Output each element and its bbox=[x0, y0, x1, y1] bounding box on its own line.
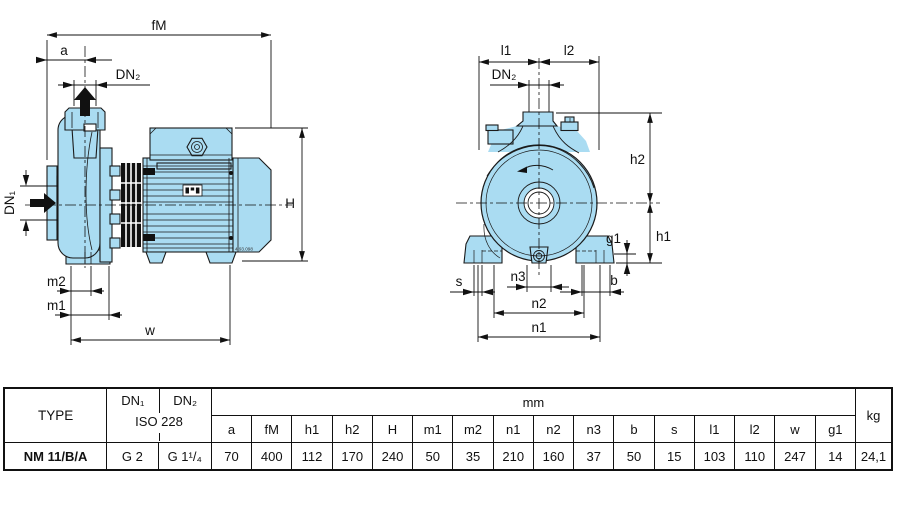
motor-brand-badge bbox=[183, 185, 202, 196]
dim-label-dn2-side: DN₂ bbox=[116, 67, 141, 82]
cell-m1: 50 bbox=[413, 443, 453, 471]
table-row: NM 11/B/A G 2 G 1¹/₄ 70 400 112 170 240 … bbox=[4, 443, 892, 471]
front-fill-plug bbox=[561, 122, 578, 131]
dim-label-dn1: DN₁ bbox=[2, 191, 17, 215]
collar-notch bbox=[84, 124, 96, 131]
dim-label-l2: l2 bbox=[564, 43, 575, 58]
front-view: l1 l2 DN₂ h2 g1 h1 s n3 b n2 n1 bbox=[450, 43, 671, 342]
cell-dn1: G 2 bbox=[107, 443, 158, 471]
cell-type: NM 11/B/A bbox=[4, 443, 107, 471]
motor-foot-rear bbox=[206, 252, 236, 263]
col-header-b: b bbox=[614, 416, 654, 443]
table-header-mm: mm bbox=[211, 388, 855, 416]
col-header-l2: l2 bbox=[735, 416, 775, 443]
dim-label-n1: n1 bbox=[531, 320, 546, 335]
col-header-g1: g1 bbox=[815, 416, 855, 443]
dn-divider-stub bbox=[159, 433, 160, 441]
dimension-table: TYPE DN₁ DN₂ ISO 228 mm kg a fM h1 h2 H … bbox=[3, 387, 893, 471]
side-view: 4.93.098 bbox=[2, 18, 308, 345]
col-header-a: a bbox=[211, 416, 251, 443]
flange-bolt bbox=[110, 214, 120, 224]
table-header-dn1: DN₁ bbox=[107, 389, 159, 413]
pump-dimension-drawing: 4.93.098 bbox=[0, 0, 897, 378]
col-header-s: s bbox=[654, 416, 694, 443]
dim-label-h2: h2 bbox=[630, 152, 645, 167]
dim-label-n2: n2 bbox=[531, 296, 546, 311]
table-header-iso: ISO 228 bbox=[107, 413, 211, 433]
cell-w: 247 bbox=[775, 443, 815, 471]
drawing-number: 4.93.098 bbox=[235, 247, 253, 252]
col-header-n3: n3 bbox=[574, 416, 614, 443]
dim-label-fm: fM bbox=[152, 18, 167, 33]
col-header-H: H bbox=[372, 416, 412, 443]
table-header-dn-iso: DN₁ DN₂ ISO 228 bbox=[107, 388, 212, 443]
dim-label-n3: n3 bbox=[510, 269, 525, 284]
cell-dn2: G 1¹/₄ bbox=[158, 443, 211, 471]
dim-label-m2: m2 bbox=[47, 274, 66, 289]
dim-label-b: b bbox=[610, 273, 618, 288]
side-view-body bbox=[47, 108, 271, 264]
cell-n3: 37 bbox=[574, 443, 614, 471]
dim-label-a: a bbox=[60, 43, 68, 58]
dim-label-h1: h1 bbox=[656, 229, 671, 244]
col-header-h1: h1 bbox=[292, 416, 332, 443]
motor-foot-front bbox=[146, 252, 166, 263]
cell-kg: 24,1 bbox=[856, 443, 892, 471]
table-header-type: TYPE bbox=[4, 388, 107, 443]
cell-g1: 14 bbox=[815, 443, 855, 471]
col-header-n2: n2 bbox=[533, 416, 573, 443]
front-left-boss bbox=[488, 130, 513, 144]
col-header-n1: n1 bbox=[493, 416, 533, 443]
col-header-l1: l1 bbox=[694, 416, 734, 443]
cell-l1: 103 bbox=[694, 443, 734, 471]
cell-b: 50 bbox=[614, 443, 654, 471]
dim-label-m1: m1 bbox=[47, 298, 66, 313]
col-header-m2: m2 bbox=[453, 416, 493, 443]
dim-label-w: w bbox=[144, 323, 155, 338]
cell-H: 240 bbox=[372, 443, 412, 471]
cell-s: 15 bbox=[654, 443, 694, 471]
table-header-kg: kg bbox=[856, 388, 892, 443]
dim-label-g1: g1 bbox=[606, 231, 621, 246]
col-header-m1: m1 bbox=[413, 416, 453, 443]
col-header-fm: fM bbox=[252, 416, 292, 443]
front-left-boss-step bbox=[486, 125, 498, 131]
col-header-w: w bbox=[775, 416, 815, 443]
cell-h1: 112 bbox=[292, 443, 332, 471]
cell-h2: 170 bbox=[332, 443, 372, 471]
col-header-h2: h2 bbox=[332, 416, 372, 443]
cell-m2: 35 bbox=[453, 443, 493, 471]
flange-bolt bbox=[110, 238, 120, 248]
dim-label-dn2-front: DN₂ bbox=[492, 67, 517, 82]
cell-a: 70 bbox=[211, 443, 251, 471]
dim-label-l1: l1 bbox=[501, 43, 512, 58]
front-discharge-port bbox=[517, 112, 557, 126]
cell-n1: 210 bbox=[493, 443, 533, 471]
cell-l2: 110 bbox=[735, 443, 775, 471]
cell-n2: 160 bbox=[533, 443, 573, 471]
table-header-dn2: DN₂ bbox=[160, 389, 211, 413]
catalog-page: 4.93.098 bbox=[0, 0, 897, 506]
dim-label-h: H bbox=[285, 196, 295, 211]
front-fill-plug-cap bbox=[565, 117, 574, 122]
flange-bolt bbox=[110, 190, 120, 200]
flange-bolt bbox=[110, 166, 120, 176]
cell-fm: 400 bbox=[252, 443, 292, 471]
dim-label-s: s bbox=[456, 274, 463, 289]
cable-gland bbox=[187, 138, 207, 155]
